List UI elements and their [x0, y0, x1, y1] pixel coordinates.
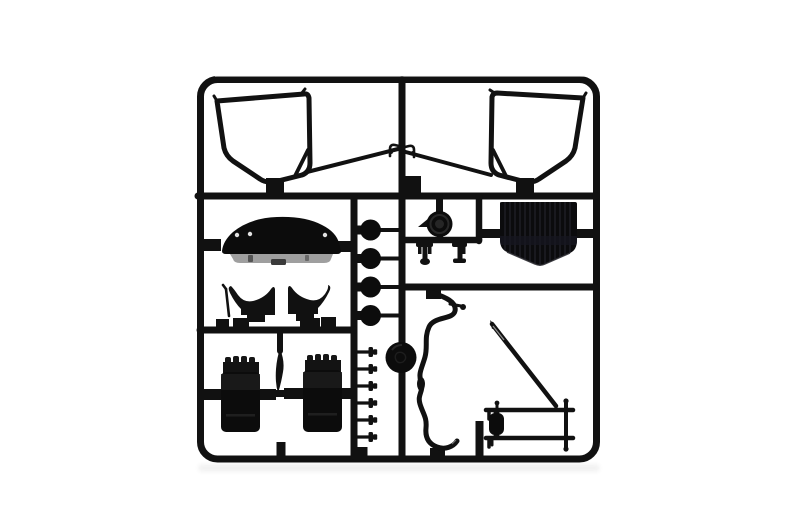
axle-assembly — [486, 398, 573, 451]
small-disc-column — [351, 220, 400, 327]
small-disc — [354, 277, 399, 298]
small-disc — [354, 220, 399, 241]
pin — [357, 432, 377, 442]
windscreen-frame-right — [490, 90, 586, 194]
dashboard-hole — [248, 232, 252, 236]
clamp-part-2 — [452, 242, 467, 263]
windscreen-frame-left — [214, 89, 310, 194]
pin — [357, 347, 377, 357]
gate-tab — [516, 178, 534, 194]
small-disc — [354, 248, 399, 269]
pin-column — [357, 347, 377, 442]
exhaust-pipe-wavy-rod — [417, 290, 466, 460]
seat-right — [288, 285, 330, 321]
large-sprue-disc — [386, 342, 417, 373]
seat-left — [229, 286, 275, 322]
dashboard — [200, 217, 355, 265]
engine-block-left — [202, 356, 276, 432]
sprue-illustration — [0, 0, 800, 530]
soft-shadow — [198, 464, 600, 472]
engine-block-right — [284, 354, 354, 432]
pin — [357, 364, 377, 374]
clamp-part-1 — [416, 242, 433, 265]
axle-oval-part — [489, 408, 504, 440]
gate-tab — [266, 178, 284, 194]
steering-boss — [418, 196, 453, 243]
thin-pillar-rod-right — [402, 151, 491, 175]
small-disc — [354, 305, 399, 326]
pin — [357, 415, 377, 425]
sprue-photo — [0, 0, 800, 530]
thin-pillar-rod-left — [307, 149, 398, 172]
gear-lever — [223, 285, 229, 316]
dashboard-hole — [323, 233, 327, 237]
antenna-rod — [490, 320, 556, 406]
runner-block-tab — [405, 176, 421, 194]
dashboard-hole — [235, 233, 239, 237]
grille-panel — [482, 202, 594, 266]
pin — [357, 398, 377, 408]
pin — [357, 381, 377, 391]
